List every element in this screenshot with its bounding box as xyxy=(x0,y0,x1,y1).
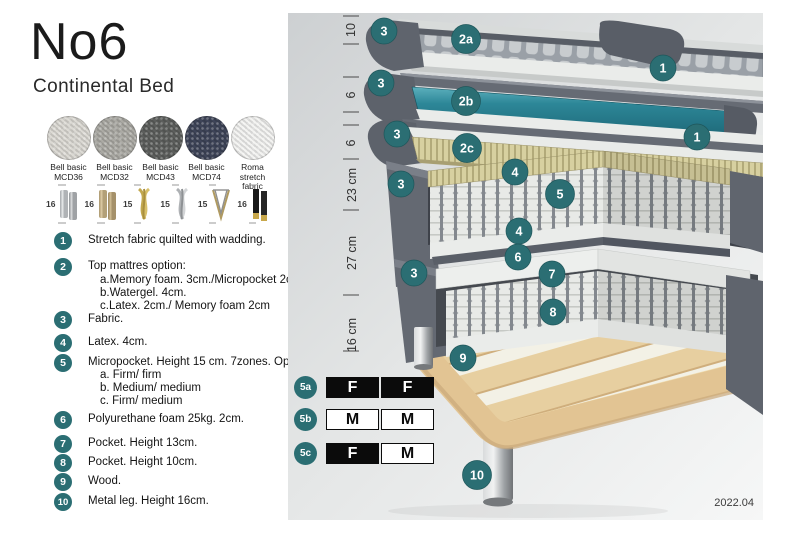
firmness-cell: M xyxy=(326,409,379,430)
callout-6: 6 xyxy=(505,244,531,270)
legend-item-8: Pocket. Height 10cm. xyxy=(88,456,197,468)
callout-2a: 2a xyxy=(452,25,481,54)
callout-1-lower: 1 xyxy=(684,124,710,150)
svg-text:4: 4 xyxy=(512,166,519,180)
measure-27cm: 27 cm xyxy=(345,236,359,270)
svg-text:2c: 2c xyxy=(460,142,474,156)
svg-text:2b: 2b xyxy=(459,95,474,109)
swatch-mcd32: Bell basicMCD32 xyxy=(92,116,137,192)
svg-text:1: 1 xyxy=(694,131,701,145)
callout-3-layer-c: 3 xyxy=(384,121,410,147)
legend-num-1: 1 xyxy=(54,232,72,250)
callout-8: 8 xyxy=(540,299,566,325)
swatch-roma: Romastretch fabric xyxy=(230,116,275,192)
legend-item-2c: c.Latex. 2cm./ Memory foam 2cm xyxy=(100,300,270,312)
legend-num-9: 9 xyxy=(54,473,72,491)
legend-num-2: 2 xyxy=(54,258,72,276)
callout-7: 7 xyxy=(539,261,565,287)
callout-3-box: 3 xyxy=(401,260,427,286)
legend-item-4: Latex. 4cm. xyxy=(88,336,147,348)
svg-text:6: 6 xyxy=(515,251,522,265)
callout-9: 9 xyxy=(450,345,476,371)
floor-shadow xyxy=(388,504,668,518)
swatch-mcd74: Bell basicMCD74 xyxy=(184,116,229,192)
leg-option-chrome-cylinder: 16 xyxy=(46,183,81,225)
svg-text:2a: 2a xyxy=(459,33,474,47)
legend-item-3: Fabric. xyxy=(88,313,123,325)
firmness-cell: F xyxy=(381,377,434,398)
legend-item-5: Micropocket. Height 15 cm. 7zones. Optio… xyxy=(88,356,311,368)
gold-twist-leg-icon xyxy=(133,183,157,225)
page-subtitle: Continental Bed xyxy=(33,76,174,98)
firmness-badge-5b: 5b xyxy=(294,408,317,431)
legend-num-3: 3 xyxy=(54,311,72,329)
legend-item-5b: b. Medium/ medium xyxy=(100,382,201,394)
leg-option-hairpin: 15 xyxy=(198,183,234,225)
fabric-swatches: Bell basicMCD36 Bell basicMCD32 Bell bas… xyxy=(46,116,276,192)
measure-10: 10 xyxy=(344,23,358,37)
legend-num-5: 5 xyxy=(54,354,72,372)
fabric-swatch-icon xyxy=(93,116,137,160)
legend-item-9: Wood. xyxy=(88,475,121,487)
svg-text:3: 3 xyxy=(411,267,418,281)
fabric-swatch-icon xyxy=(139,116,183,160)
leg-option-gold-twist: 15 xyxy=(123,183,157,225)
svg-text:10: 10 xyxy=(470,469,484,483)
fabric-swatch-icon xyxy=(231,116,275,160)
legend-num-8: 8 xyxy=(54,454,72,472)
legend-num-4: 4 xyxy=(54,334,72,352)
leg-option-black-gold: 16 xyxy=(237,183,271,225)
firmness-cell: F xyxy=(326,377,379,398)
leg-option-silver-twist: 15 xyxy=(160,183,194,225)
callout-4-bottom: 4 xyxy=(506,218,532,244)
svg-text:9: 9 xyxy=(460,352,467,366)
wood-cylinder-leg-icon xyxy=(95,183,120,225)
measurement-labels: 10 6 6 23 cm 27 cm 16 cm xyxy=(344,23,359,352)
svg-text:3: 3 xyxy=(394,128,401,142)
callout-2c: 2c xyxy=(453,134,482,163)
version-label: 2022.04 xyxy=(714,497,754,509)
firmness-badge-5c: 5c xyxy=(294,442,317,465)
callout-3-layer-a: 3 xyxy=(371,18,397,44)
svg-text:1: 1 xyxy=(660,62,667,76)
callout-5: 5 xyxy=(546,180,575,209)
svg-text:3: 3 xyxy=(398,178,405,192)
swatch-mcd36: Bell basicMCD36 xyxy=(46,116,91,192)
svg-text:3: 3 xyxy=(381,25,388,39)
measure-16cm: 16 cm xyxy=(345,318,359,352)
legend-item-2b: b.Watergel. 4cm. xyxy=(100,287,187,299)
fabric-swatch-icon xyxy=(47,116,91,160)
legend-item-5c: c. Firm/ medium xyxy=(100,395,182,407)
firmness-row-5b: 5b M M xyxy=(294,408,436,431)
svg-text:4: 4 xyxy=(516,225,523,239)
legend-item-5a: a. Firm/ firm xyxy=(100,369,161,381)
legend-item-7: Pocket. Height 13cm. xyxy=(88,437,197,449)
bed-diagram-panel: 10 6 6 23 cm 27 cm 16 cm xyxy=(288,13,763,520)
leg-options: 16 16 15 15 15 xyxy=(46,183,275,225)
hairpin-leg-icon xyxy=(208,183,234,225)
svg-text:5: 5 xyxy=(557,188,564,202)
chrome-cylinder-leg-icon xyxy=(56,183,81,225)
firmness-cell: M xyxy=(381,409,434,430)
callout-1-upper: 1 xyxy=(650,55,676,81)
fabric-swatch-icon xyxy=(185,116,229,160)
callout-3-layer-b: 3 xyxy=(368,70,394,96)
legend-item-6: Polyurethane foam 25kg. 2cm. xyxy=(88,413,244,425)
callout-10: 10 xyxy=(463,461,492,490)
legend-num-6: 6 xyxy=(54,411,72,429)
legend-item-10: Metal leg. Height 16cm. xyxy=(88,495,209,507)
measure-23cm: 23 cm xyxy=(345,168,359,202)
leg-option-wood-cylinder: 16 xyxy=(84,183,119,225)
firmness-row-5a: 5a F F xyxy=(294,376,436,399)
firmness-cell: F xyxy=(326,443,379,464)
black-gold-leg-icon xyxy=(248,183,272,225)
callout-2b: 2b xyxy=(452,87,481,116)
firmness-badge-5a: 5a xyxy=(294,376,317,399)
legend-item-2a: a.Memory foam. 3cm./Micropocket 2cm xyxy=(100,274,301,286)
measure-6b: 6 xyxy=(344,139,358,146)
legend-num-7: 7 xyxy=(54,435,72,453)
svg-text:7: 7 xyxy=(549,268,556,282)
measure-6a: 6 xyxy=(344,91,358,98)
legend-item-2: Top mattres option: xyxy=(88,260,186,272)
callout-4-top: 4 xyxy=(502,159,528,185)
back-metal-leg xyxy=(414,327,433,370)
legend-num-10: 10 xyxy=(54,493,72,511)
silver-twist-leg-icon xyxy=(171,183,195,225)
page-title: No6 xyxy=(30,12,128,72)
svg-text:3: 3 xyxy=(378,77,385,91)
svg-text:8: 8 xyxy=(550,306,557,320)
callout-3-mattress: 3 xyxy=(388,171,414,197)
firmness-cell: M xyxy=(381,443,434,464)
swatch-mcd43: Bell basicMCD43 xyxy=(138,116,183,192)
firmness-row-5c: 5c F M xyxy=(294,442,436,465)
legend-item-1: Stretch fabric quilted with wadding. xyxy=(88,234,266,246)
